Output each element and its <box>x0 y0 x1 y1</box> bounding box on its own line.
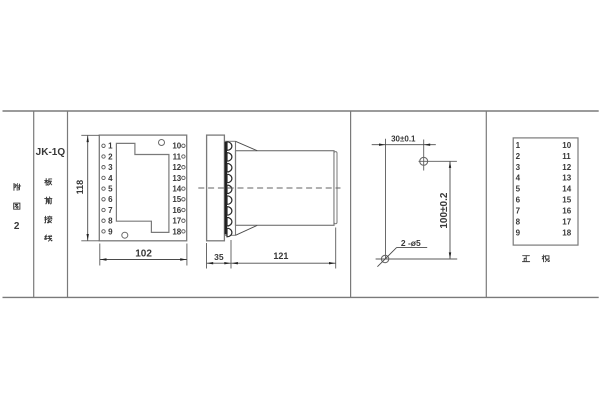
svg-text:11: 11 <box>562 152 571 161</box>
svg-text:17: 17 <box>172 217 181 226</box>
svg-text:2: 2 <box>14 221 20 232</box>
svg-text:18: 18 <box>172 227 181 236</box>
svg-text:121: 121 <box>273 251 288 261</box>
svg-text:5: 5 <box>516 185 521 194</box>
svg-text:10: 10 <box>172 142 181 151</box>
svg-text:2 -ø5: 2 -ø5 <box>401 238 421 248</box>
svg-text:13: 13 <box>562 174 571 183</box>
svg-text:102: 102 <box>135 249 152 260</box>
svg-text:14: 14 <box>172 185 181 194</box>
svg-text:9: 9 <box>516 228 521 237</box>
svg-text:15: 15 <box>562 196 571 205</box>
svg-text:13: 13 <box>172 174 181 183</box>
svg-text:18: 18 <box>562 228 571 237</box>
svg-text:2: 2 <box>108 152 113 161</box>
svg-text:12: 12 <box>172 163 181 172</box>
svg-text:16: 16 <box>562 207 571 216</box>
svg-text:3: 3 <box>516 163 521 172</box>
svg-text:4: 4 <box>108 174 113 183</box>
svg-text:6: 6 <box>516 196 521 205</box>
svg-text:118: 118 <box>75 180 85 195</box>
svg-text:4: 4 <box>516 174 521 183</box>
svg-text:10: 10 <box>562 141 571 150</box>
svg-text:15: 15 <box>172 195 181 204</box>
svg-text:9: 9 <box>108 227 113 236</box>
svg-text:11: 11 <box>173 152 182 161</box>
svg-text:5: 5 <box>108 185 113 194</box>
svg-text:30±0.1: 30±0.1 <box>391 135 416 144</box>
svg-text:3: 3 <box>108 163 113 172</box>
svg-text:7: 7 <box>516 207 521 216</box>
svg-text:100±0.2: 100±0.2 <box>439 192 450 229</box>
svg-text:8: 8 <box>108 217 113 226</box>
svg-text:2: 2 <box>516 152 521 161</box>
svg-text:14: 14 <box>562 185 571 194</box>
svg-text:1: 1 <box>108 142 113 151</box>
svg-text:17: 17 <box>562 217 571 226</box>
svg-text:6: 6 <box>108 195 113 204</box>
svg-text:7: 7 <box>108 206 113 215</box>
svg-text:35: 35 <box>214 252 224 262</box>
svg-text:1: 1 <box>516 141 521 150</box>
svg-text:JK-1Q: JK-1Q <box>36 147 66 158</box>
svg-text:16: 16 <box>172 206 181 215</box>
svg-text:12: 12 <box>562 163 571 172</box>
svg-text:8: 8 <box>516 217 521 226</box>
